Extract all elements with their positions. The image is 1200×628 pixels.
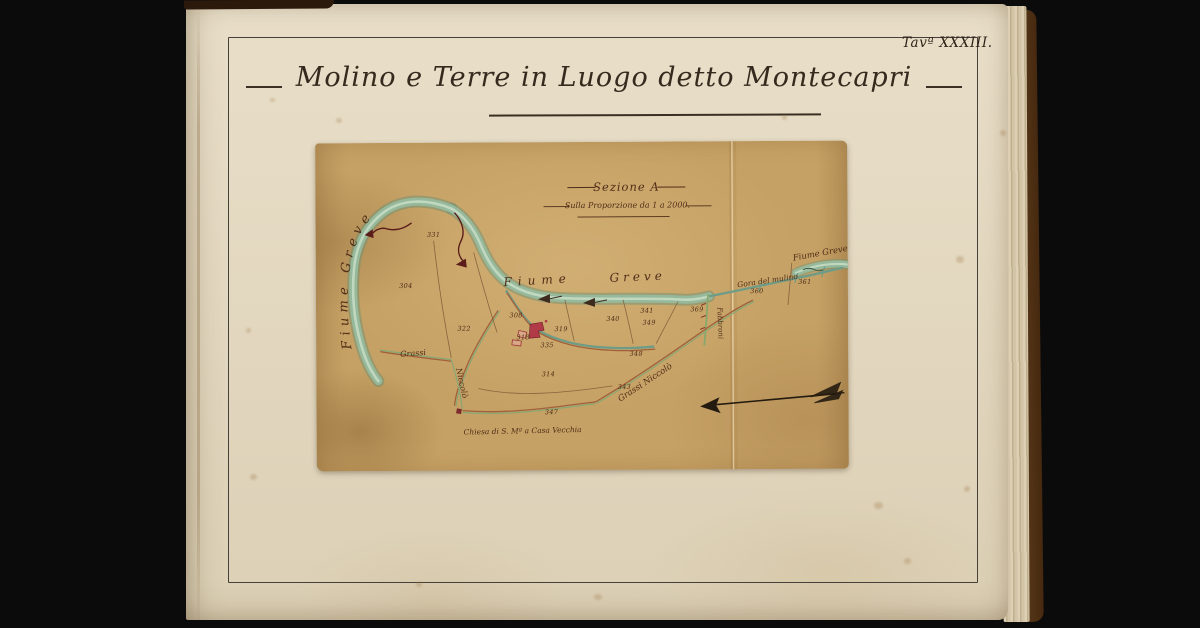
parcel-number: 322 [457,325,470,333]
foxing-spot [874,502,883,509]
plate-number: Tavª XXXIII. [902,35,993,51]
parcel-number: 347 [545,408,559,416]
river-center-label-fiume: Fiume [502,271,572,289]
foxing-spot [782,115,787,120]
owner-fabbroni-label: Fabbroni [715,306,724,339]
book-cover-top-edge [184,0,334,10]
map-fold-crease [729,141,738,469]
foxing-spot [1000,130,1006,136]
roads [380,300,755,414]
church-label: Chiesa di S. Mª a Casa Vecchia [464,425,582,437]
page-title-row: Molino e Terre in Luogo detto Montecapri [186,62,1008,93]
section-heading: Sezione A [593,180,660,194]
parcel-number: 360 [750,287,763,295]
foxing-spot [904,558,911,564]
map-sheet: Sezione A Sulla Proporzione da 1 a 2000.… [315,141,849,472]
parcel-number: 314 [542,370,555,378]
photo-background: Tavª XXXIII. Molino e Terre in Luogo det… [0,0,1200,628]
church-building [456,408,462,414]
parcel-number: 308 [509,311,522,319]
parcel-number: 341 [640,307,653,315]
title-flourish-right [926,86,962,88]
map-heading: Sezione A Sulla Proporzione da 1 a 2000. [543,179,711,217]
parcel-number: 369 [690,305,703,313]
parcel-number: 335 [541,341,554,349]
parcel-number: 319 [554,325,567,333]
page-title: Molino e Terre in Luogo detto Montecapri [296,62,913,93]
map-drawing: Sezione A Sulla Proporzione da 1 a 2000.… [315,141,849,472]
parcel-boundaries [434,239,679,393]
atlas-page: Tavª XXXIII. Molino e Terre in Luogo det… [186,4,1008,620]
parcel-number: 331 [427,231,440,239]
parcel-number: 348 [630,350,643,358]
river-center-label-greve: Greve [609,269,666,285]
foxing-spot [336,118,342,123]
parcel-number: 361 [798,278,811,286]
foxing-spot [416,582,422,587]
parcel-number: 304 [399,282,412,290]
foxing-spot [270,98,275,102]
foxing-spot [594,594,602,600]
foxing-spot [250,474,257,480]
title-flourish-left [246,86,282,88]
scale-note: Sulla Proporzione da 1 a 2000. [565,200,690,210]
foxing-spot [964,486,970,492]
north-arrow-icon [701,383,844,413]
parcel-number: 318 [516,333,529,341]
foxing-spot [956,256,964,263]
parcel-number: 343 [618,383,631,391]
foxing-spot [246,328,251,333]
parcel-number: 349 [642,319,655,327]
page-crease [197,4,200,620]
parcel-number: 340 [606,315,619,323]
